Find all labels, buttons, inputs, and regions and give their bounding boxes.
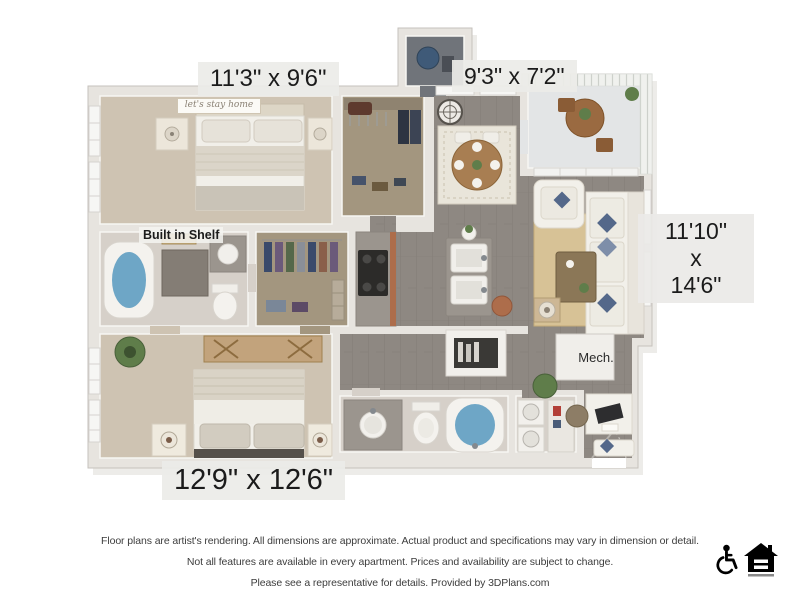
entry-bench <box>594 440 634 456</box>
hanging-clothes <box>264 242 272 272</box>
table-decor <box>566 260 574 268</box>
plate <box>472 178 482 188</box>
bed-headboard <box>194 449 304 458</box>
storage-box <box>292 302 308 312</box>
cabinet-face <box>390 232 396 326</box>
potted-plant-icon <box>533 374 557 398</box>
lamp-icon <box>314 128 326 140</box>
storage-item <box>372 182 388 191</box>
detergent <box>553 406 561 416</box>
plate <box>472 142 482 152</box>
hanging-clothes <box>275 242 283 272</box>
balcony-door-gap <box>520 120 528 154</box>
plate <box>490 160 500 170</box>
hanging-clothes <box>319 242 327 272</box>
window-icon <box>89 106 100 156</box>
built-in-shelf-label: Built in Shelf <box>139 227 223 243</box>
storage-item <box>352 176 366 185</box>
window-icon <box>89 162 100 212</box>
bath2-door-gap <box>352 388 380 396</box>
paper <box>602 424 618 431</box>
toilet-tank <box>412 402 440 411</box>
wheelchair-accessible-icon <box>713 543 738 575</box>
sink-icon <box>218 244 238 264</box>
closet2-door-gap <box>300 326 330 334</box>
balcony-railing <box>640 74 652 174</box>
mech-closet-label: Mech. <box>578 350 613 365</box>
patio-chair <box>558 98 575 112</box>
shower-tile <box>162 250 208 296</box>
duvet <box>194 400 304 424</box>
open-plan-connector <box>520 176 528 326</box>
faucet-icon <box>370 408 376 414</box>
disclaimer-text: Floor plans are artist's rendering. All … <box>40 531 760 594</box>
disclaimer-line-3: Please see a representative for details.… <box>40 573 760 594</box>
living-dim-line3: 14'6" <box>648 272 744 299</box>
storage-item <box>394 178 406 186</box>
desk-chair <box>566 405 588 427</box>
patio-dimensions-label: 9'3" x 7'2" <box>452 60 577 92</box>
tub-water <box>112 252 146 308</box>
centerpiece-plant <box>472 160 482 170</box>
coffee-table <box>556 252 596 302</box>
living-dim-line1: 11'10" <box>648 218 744 245</box>
footer-icons <box>713 543 778 581</box>
storage-box <box>266 300 286 312</box>
hanging-clothes <box>330 242 338 272</box>
pillow <box>254 424 304 448</box>
hanging-clothes <box>308 242 316 272</box>
blanket <box>194 370 304 400</box>
hanging-clothes <box>286 242 294 272</box>
table-plant <box>579 283 589 293</box>
duffel-bag <box>348 102 372 115</box>
bathroom2 <box>344 398 504 452</box>
hanging-clothes <box>297 242 305 272</box>
bedroom2-door-gap <box>150 326 180 334</box>
bedroom1-dimensions-label: 11'3" x 9'6" <box>198 62 339 96</box>
patio-chair <box>596 138 613 152</box>
window-icon <box>89 400 100 442</box>
plate <box>454 160 464 170</box>
hanging-clothes <box>410 110 421 144</box>
pillow <box>200 424 250 448</box>
living-room <box>534 168 651 334</box>
faucet-icon <box>481 287 487 293</box>
hanging-clothes <box>398 110 409 144</box>
potted-plant-icon <box>625 87 639 101</box>
blanket-fold <box>196 186 304 210</box>
toilet-icon <box>213 292 237 320</box>
living-room-dimensions-label: 11'10" x 14'6" <box>638 214 754 303</box>
closet1-door-gap <box>370 216 396 232</box>
living-dim-line2: x <box>648 245 744 272</box>
disclaimer-line-2: Not all features are available in every … <box>40 552 760 573</box>
pillow <box>254 120 302 142</box>
tub-water <box>455 404 495 446</box>
window-icon <box>89 348 100 394</box>
blanket <box>196 146 304 176</box>
detergent <box>553 420 561 428</box>
closet-rack <box>332 280 344 320</box>
bath1-door-gap <box>248 264 256 292</box>
faucet-icon <box>481 255 487 261</box>
wall-art-sign: let's stay home <box>177 98 261 114</box>
disclaimer-line-1: Floor plans are artist's rendering. All … <box>40 531 760 552</box>
entry-door-gap <box>592 458 626 468</box>
patio-plant <box>579 108 591 120</box>
bedroom2-dimensions-label: 12'9" x 12'6" <box>162 461 345 500</box>
hvac-unit <box>417 47 439 69</box>
bar-stool <box>492 296 512 316</box>
equal-housing-opportunity-icon <box>744 543 778 581</box>
faucet-icon <box>472 443 478 449</box>
pillow <box>202 120 250 142</box>
dresser <box>204 336 322 362</box>
